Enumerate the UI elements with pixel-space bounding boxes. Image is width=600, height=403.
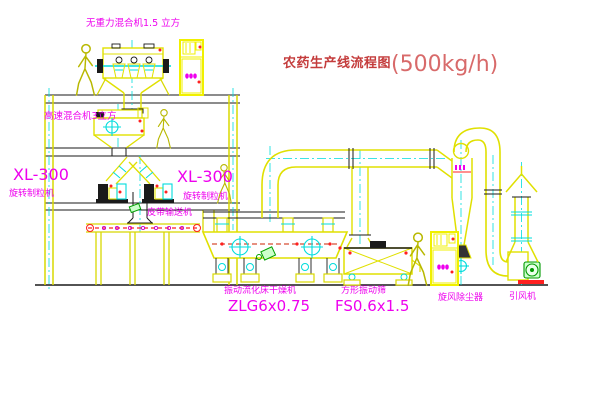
label-gravity-mixer: 无重力混合机1.5 立方 bbox=[86, 17, 180, 29]
label-fan: 引风机 bbox=[509, 290, 536, 302]
fluid-bed-dryer bbox=[203, 212, 347, 282]
spring-mounts bbox=[213, 258, 342, 282]
flow-diagram-svg: 农药生产线流程图 (500kg/h) 无重力混合机1.5 立方 高速混合机3立方… bbox=[0, 0, 600, 403]
induced-draft-fan bbox=[508, 252, 544, 284]
belt-conveyor bbox=[86, 210, 216, 285]
label-dryer: 振动流化床干燥机 bbox=[224, 284, 296, 296]
label-xl300-mid: XL-300 bbox=[177, 167, 233, 186]
vibrating-sieve bbox=[344, 241, 420, 285]
label-granulator-left: 旋转制粒机 bbox=[9, 187, 54, 199]
label-belt-conveyor: 皮带输送机 bbox=[147, 206, 192, 218]
cabinet2-knobs bbox=[437, 264, 449, 269]
cyclone-mini-marks bbox=[455, 165, 465, 170]
conveyor-legs bbox=[96, 232, 169, 285]
person-second-floor bbox=[157, 110, 171, 148]
cad-drawing: 农药生产线流程图 (500kg/h) 无重力混合机1.5 立方 高速混合机3立方… bbox=[0, 0, 600, 403]
exhaust-stack bbox=[506, 166, 538, 262]
label-sieve-model: FS0.6x1.5 bbox=[335, 297, 409, 315]
dryer-feed-chute bbox=[201, 210, 216, 232]
control-cabinet-top bbox=[180, 40, 203, 95]
sieve-motor bbox=[370, 241, 386, 248]
person-top-floor bbox=[77, 45, 95, 95]
fan-base bbox=[518, 280, 544, 284]
control-cabinet-right bbox=[431, 232, 458, 285]
cabinet-knobs bbox=[185, 73, 197, 78]
splitter-hopper bbox=[106, 157, 160, 184]
label-xl300-left: XL-300 bbox=[13, 165, 69, 184]
diagram-title-capacity: (500kg/h) bbox=[391, 52, 498, 77]
granulator-1 bbox=[96, 184, 128, 203]
label-sieve: 方形振动筛 bbox=[341, 284, 386, 296]
label-dryer-model: ZLG6x0.75 bbox=[228, 297, 310, 315]
label-granulator-mid: 旋转制粒机 bbox=[183, 190, 228, 202]
diagram-title: 农药生产线流程图 bbox=[282, 55, 391, 71]
label-high-speed-mixer: 高速混合机3立方 bbox=[44, 110, 117, 122]
label-cyclone: 旋风除尘器 bbox=[438, 291, 483, 303]
